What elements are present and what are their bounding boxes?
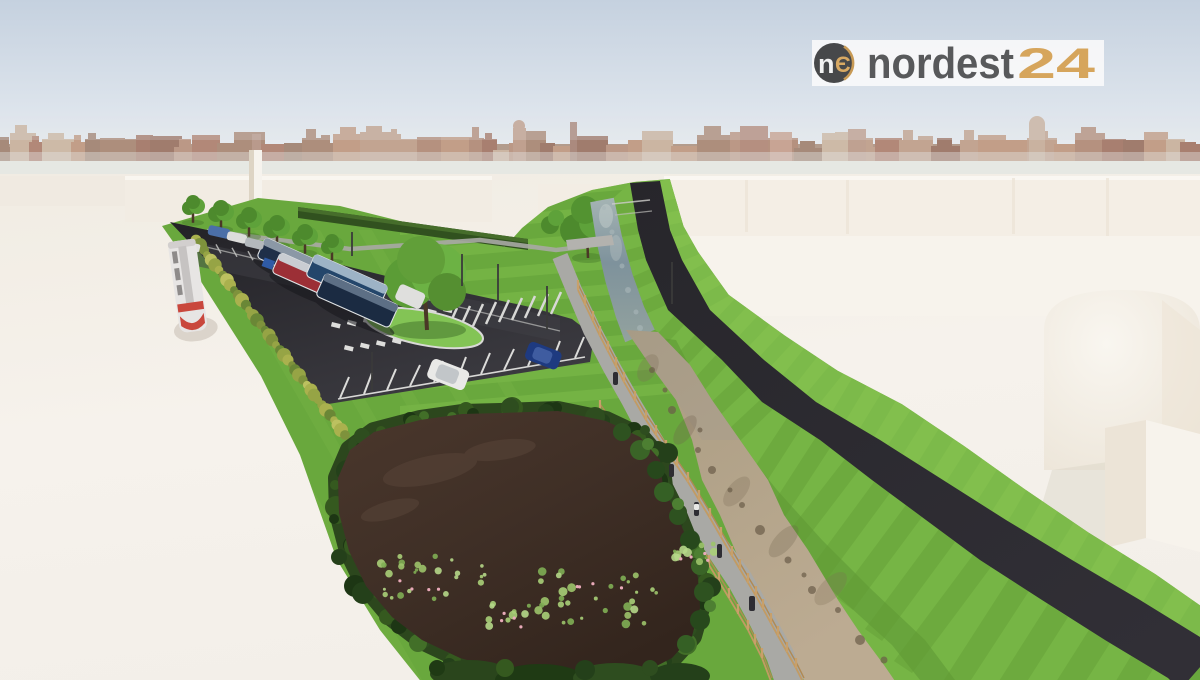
svg-text:24: 24 (1017, 40, 1095, 88)
svg-text:Є: Є (835, 52, 851, 77)
svg-text:n: n (818, 49, 835, 79)
svg-text:nordest: nordest (867, 39, 1014, 88)
